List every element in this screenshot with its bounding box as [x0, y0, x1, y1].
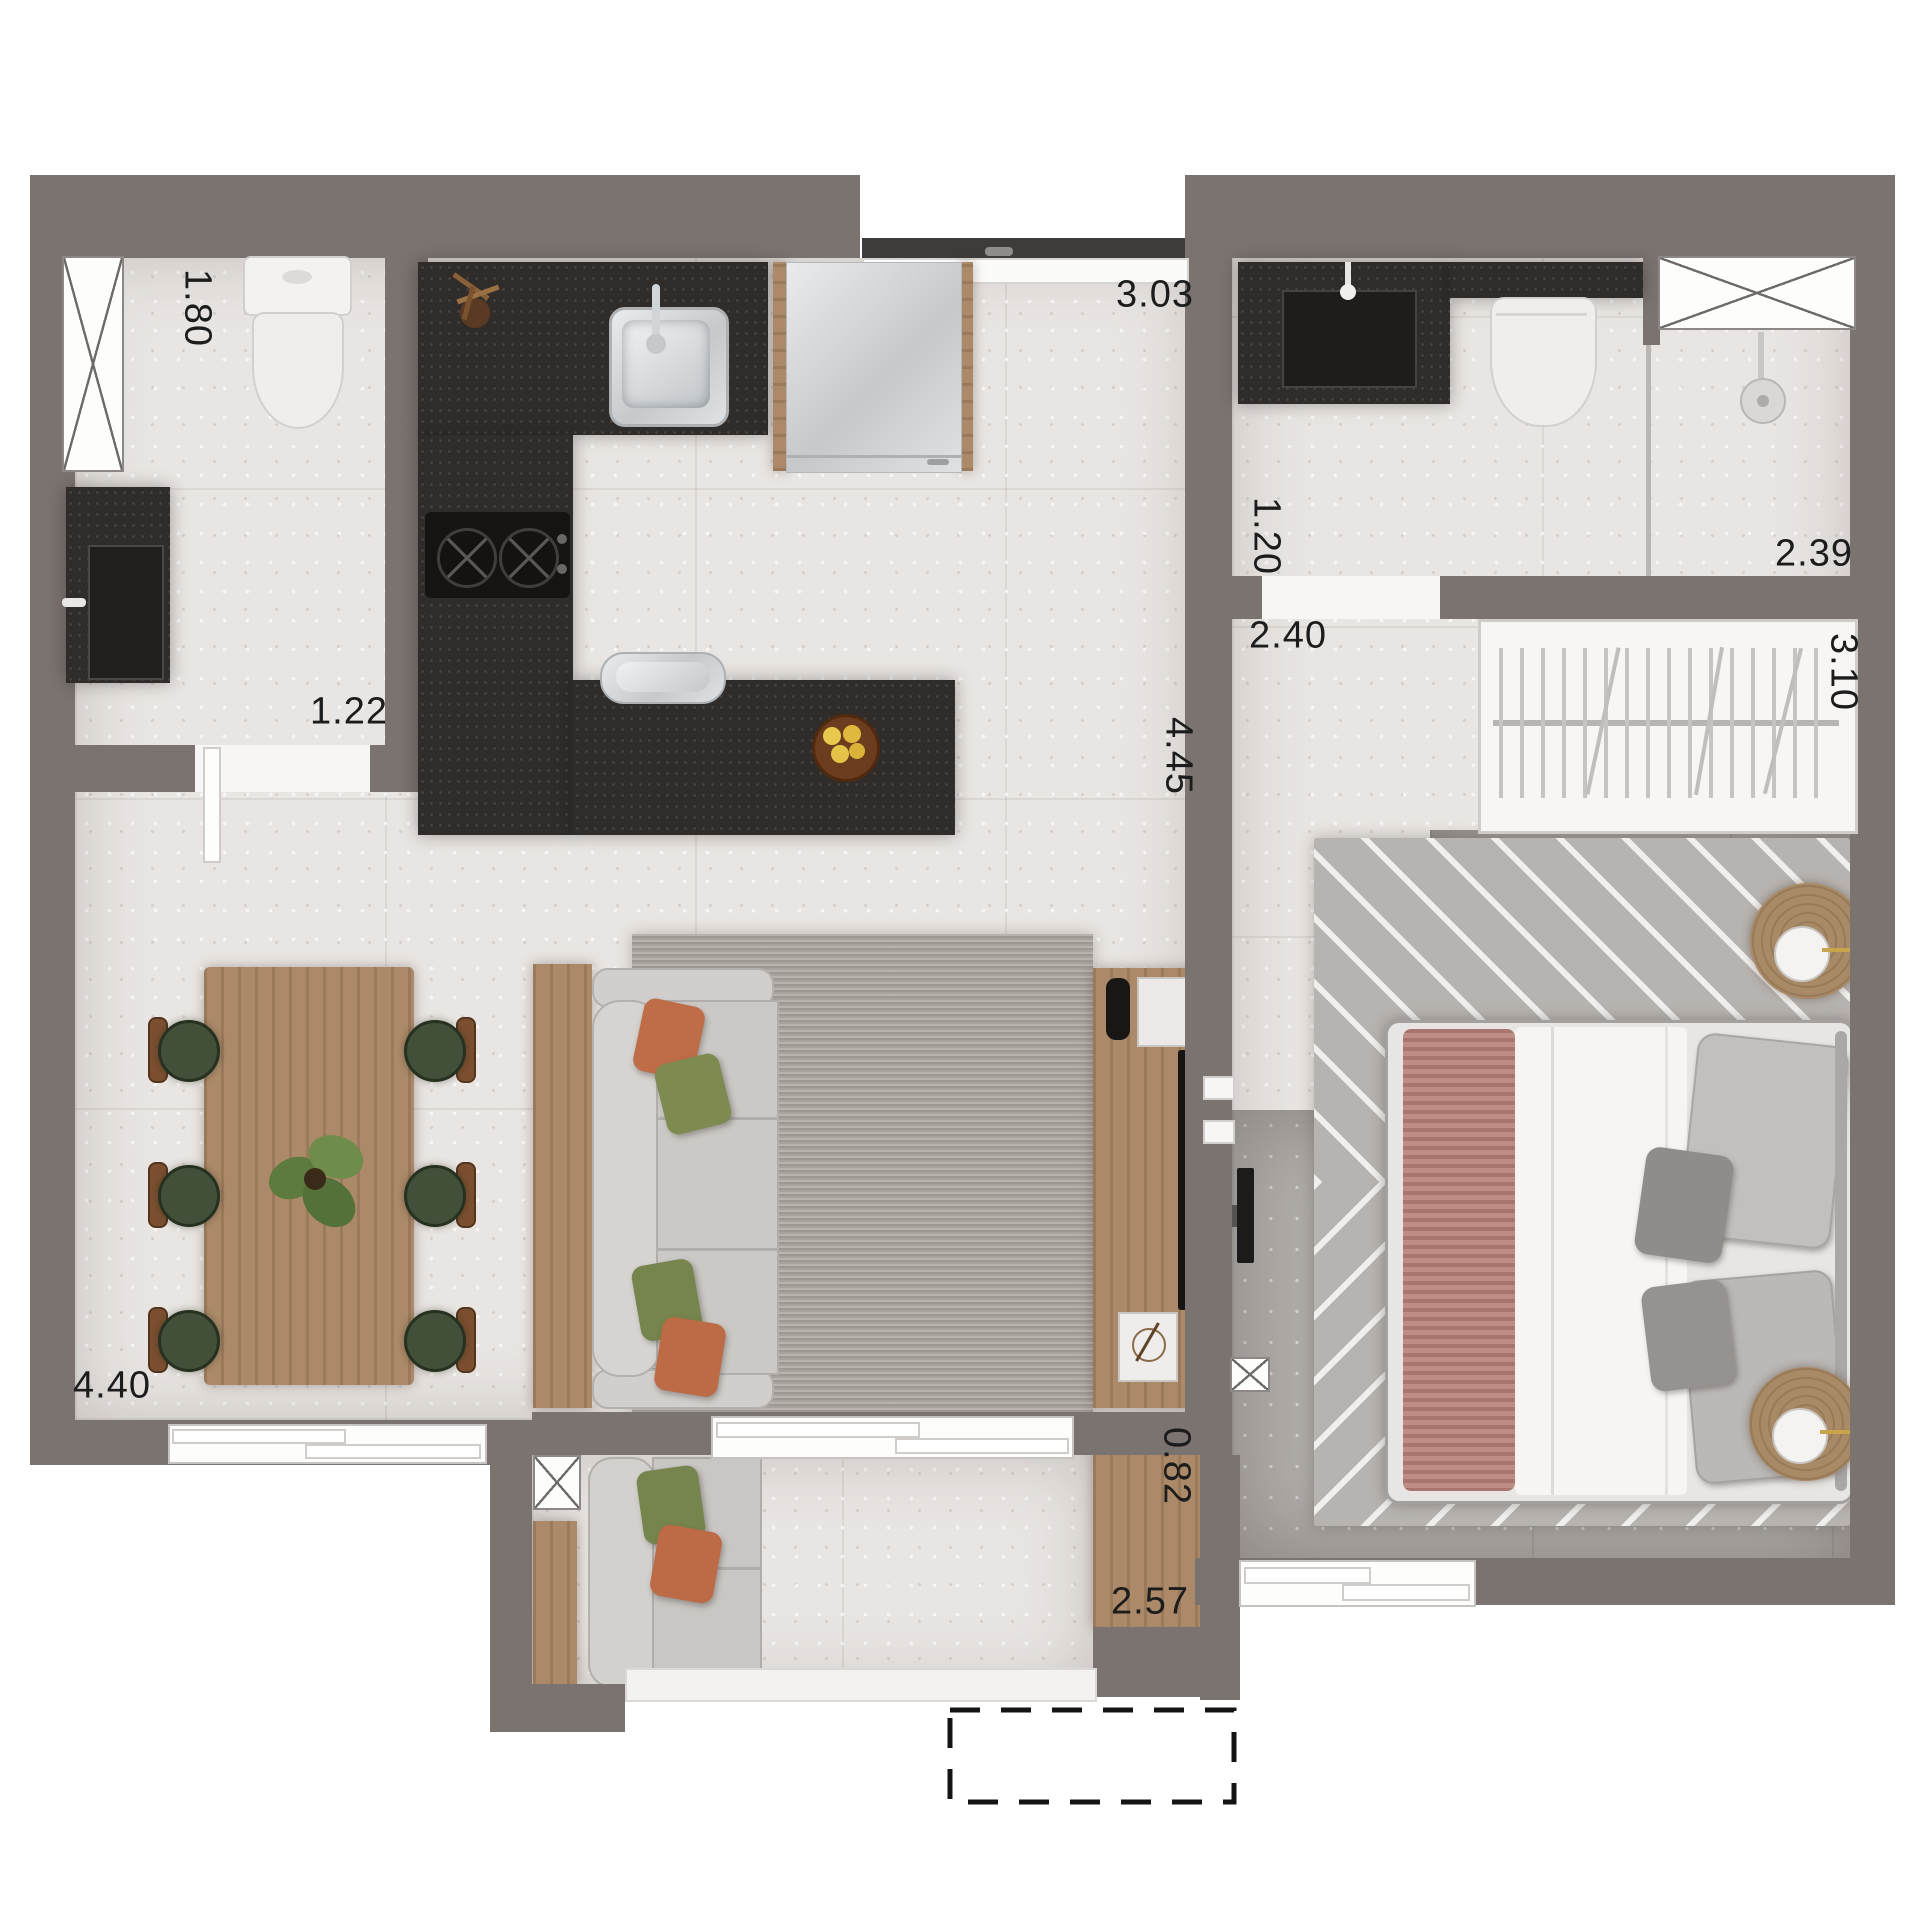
shaft-x-icon	[1230, 1357, 1270, 1392]
dim-label-living-length: 4.45	[1157, 717, 1200, 795]
shower-head-icon	[1740, 378, 1786, 424]
cooktop-knob	[557, 564, 567, 574]
dashed-projection-area	[947, 1707, 1237, 1805]
bathroom2-vanity-counter	[1238, 262, 1450, 404]
bedroom-tv	[1237, 1168, 1254, 1263]
entry-mat	[862, 238, 1185, 258]
dining-chair	[158, 1310, 220, 1372]
table-lamp-icon	[1772, 1408, 1828, 1464]
wall-balcony-left	[490, 1420, 532, 1684]
bed-duvet	[1515, 1027, 1687, 1495]
balcony-side-panel	[533, 1521, 577, 1684]
decor-tray	[1118, 1312, 1178, 1382]
bedroom-window	[1239, 1560, 1476, 1607]
table-plant-icon	[260, 1128, 370, 1238]
wall-balcony-bottom-left	[490, 1684, 625, 1732]
dim-label-kitchen-width: 3.03	[1116, 274, 1194, 317]
cooktop	[425, 512, 570, 598]
dim-label-shower-width: 2.39	[1775, 533, 1853, 576]
bathroom1-sink	[88, 545, 164, 680]
entry-door-handle-icon	[985, 247, 1013, 256]
balcony-parapet	[625, 1668, 1097, 1702]
bed-pillow-small	[1633, 1145, 1735, 1264]
toilet-bowl	[1490, 297, 1597, 427]
shaft-x-icon	[533, 1455, 581, 1510]
bedroom-door-jamb	[1203, 1120, 1235, 1144]
bathroom2-door-opening	[1262, 576, 1440, 619]
counter-plant-icon	[446, 282, 502, 340]
dining-chair	[404, 1165, 466, 1227]
dim-label-bath2-width: 1.20	[1245, 497, 1288, 575]
shower-glass-partition	[1646, 345, 1651, 576]
dim-label-bath1-length: 1.80	[176, 269, 219, 347]
sofa-back-console	[533, 964, 592, 1408]
wall-bathroom1-bottom	[75, 745, 195, 792]
wall-exterior-top-left	[30, 175, 860, 258]
shaft-x-icon	[1658, 256, 1856, 330]
wall-exterior-top-right	[1185, 175, 1895, 258]
bathroom2-sink	[1282, 290, 1417, 388]
sofa-pillow-orange	[653, 1315, 728, 1398]
bedroom-door-jamb	[1203, 1076, 1235, 1100]
dining-chair	[404, 1310, 466, 1372]
kitchen-sink	[609, 307, 729, 427]
dim-label-balcony-length: 2.57	[1111, 1581, 1189, 1624]
dim-label-bath1-width: 1.22	[310, 691, 388, 734]
shower-arm-icon	[1758, 332, 1764, 378]
remote-icon	[1106, 978, 1130, 1040]
dining-chair	[158, 1165, 220, 1227]
bathroom2-faucet-icon	[1340, 284, 1356, 300]
dim-label-balcony-deck-depth: 0.82	[1155, 1427, 1198, 1505]
kitchen-faucet-icon	[646, 334, 666, 354]
wardrobe	[1478, 619, 1858, 834]
floor-plan: 1.80 1.22 3.03 4.45 1.20 2.40 2.39 3.10 …	[0, 0, 1920, 1920]
burner-icon	[499, 528, 559, 588]
cooktop-knob	[557, 534, 567, 544]
book-icon	[1137, 977, 1189, 1047]
bathroom1-faucet-icon	[62, 598, 86, 607]
wall-balcony-bottom-right	[1093, 1627, 1240, 1697]
bathroom2-counter-strip	[1450, 262, 1643, 298]
burner-icon	[437, 528, 497, 588]
dining-window	[168, 1424, 487, 1464]
fridge	[773, 262, 973, 471]
wall-exterior-right	[1850, 258, 1895, 1605]
dining-chair	[404, 1020, 466, 1082]
dim-label-hall-width: 2.40	[1249, 615, 1327, 658]
table-lamp-icon	[1774, 926, 1830, 982]
fruit-bowl-icon	[812, 714, 880, 782]
peninsula-appliance	[600, 652, 726, 704]
wall-divider-center	[1185, 258, 1232, 1455]
balcony-pillow-orange	[648, 1523, 724, 1605]
bed-pillow-small	[1640, 1278, 1737, 1393]
balcony-sliding-door	[711, 1416, 1074, 1459]
bathroom1-door-opening	[195, 745, 370, 792]
bathroom1-door-leaf	[203, 747, 221, 863]
dim-label-wardrobe-length: 3.10	[1822, 633, 1865, 711]
dim-label-living-width: 4.40	[73, 1365, 151, 1408]
bathroom1-vanity-counter	[66, 487, 170, 683]
kitchen-counter-left	[418, 435, 573, 835]
dining-chair	[158, 1020, 220, 1082]
shaft-x-icon	[62, 256, 124, 472]
toilet-tank	[243, 256, 352, 316]
bed-runner-pink	[1403, 1029, 1515, 1491]
